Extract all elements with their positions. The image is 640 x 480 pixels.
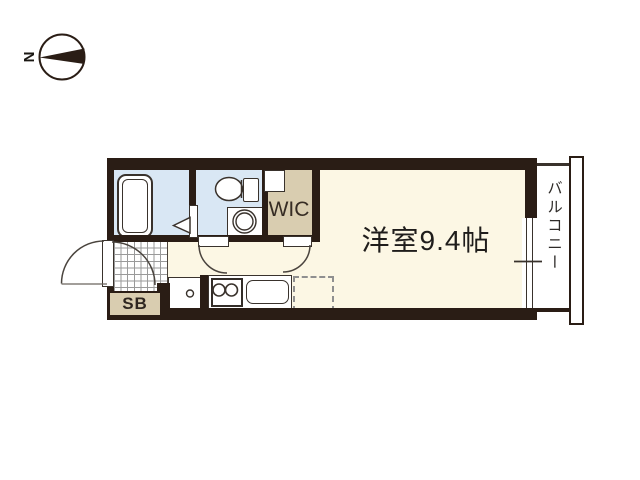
wall-bottom bbox=[107, 308, 537, 320]
shoe-box-label: SB bbox=[122, 294, 148, 314]
balcony-railing bbox=[569, 156, 584, 325]
wic-label: WIC bbox=[262, 197, 316, 223]
kitchen-sink-icon bbox=[246, 280, 289, 304]
shoe-box: SB bbox=[108, 291, 162, 317]
two-burner-stove-icon bbox=[211, 278, 243, 307]
pipe-space-box bbox=[264, 170, 285, 192]
balcony-top-edge bbox=[537, 163, 569, 166]
sliding-window bbox=[522, 218, 537, 308]
main-room-label: 洋室9.4帖 bbox=[330, 220, 522, 258]
window-glass-line bbox=[526, 218, 528, 308]
wall-left-upper bbox=[107, 170, 114, 240]
compass-north-label: N bbox=[19, 47, 39, 67]
compass-icon bbox=[40, 35, 85, 80]
bathroom-door-leaf bbox=[189, 205, 198, 238]
wash-basin-unit-icon bbox=[168, 277, 201, 310]
entrance-door-leaf bbox=[102, 240, 114, 287]
wall-kitchen-stub bbox=[200, 275, 208, 308]
toilet-tank-icon bbox=[243, 178, 259, 202]
refrigerator-space-outline bbox=[293, 276, 334, 312]
washroom-door-leaf bbox=[198, 236, 229, 247]
wic-door-leaf bbox=[283, 236, 312, 247]
bathtub-inner-line bbox=[122, 179, 148, 233]
balcony-label: バルコニー bbox=[538, 180, 568, 312]
bathtub-icon bbox=[117, 174, 153, 238]
entrance-door-outer-arc bbox=[62, 241, 105, 284]
wall-bathroom-stub bbox=[189, 170, 196, 205]
washing-machine-pan-icon bbox=[227, 207, 264, 238]
window-glass-line bbox=[532, 218, 534, 308]
floor-plan-canvas: 洋室9.4帖 WIC バルコニー SB N bbox=[0, 0, 640, 480]
wall-top bbox=[107, 158, 537, 170]
wall-right-upper bbox=[525, 158, 537, 218]
